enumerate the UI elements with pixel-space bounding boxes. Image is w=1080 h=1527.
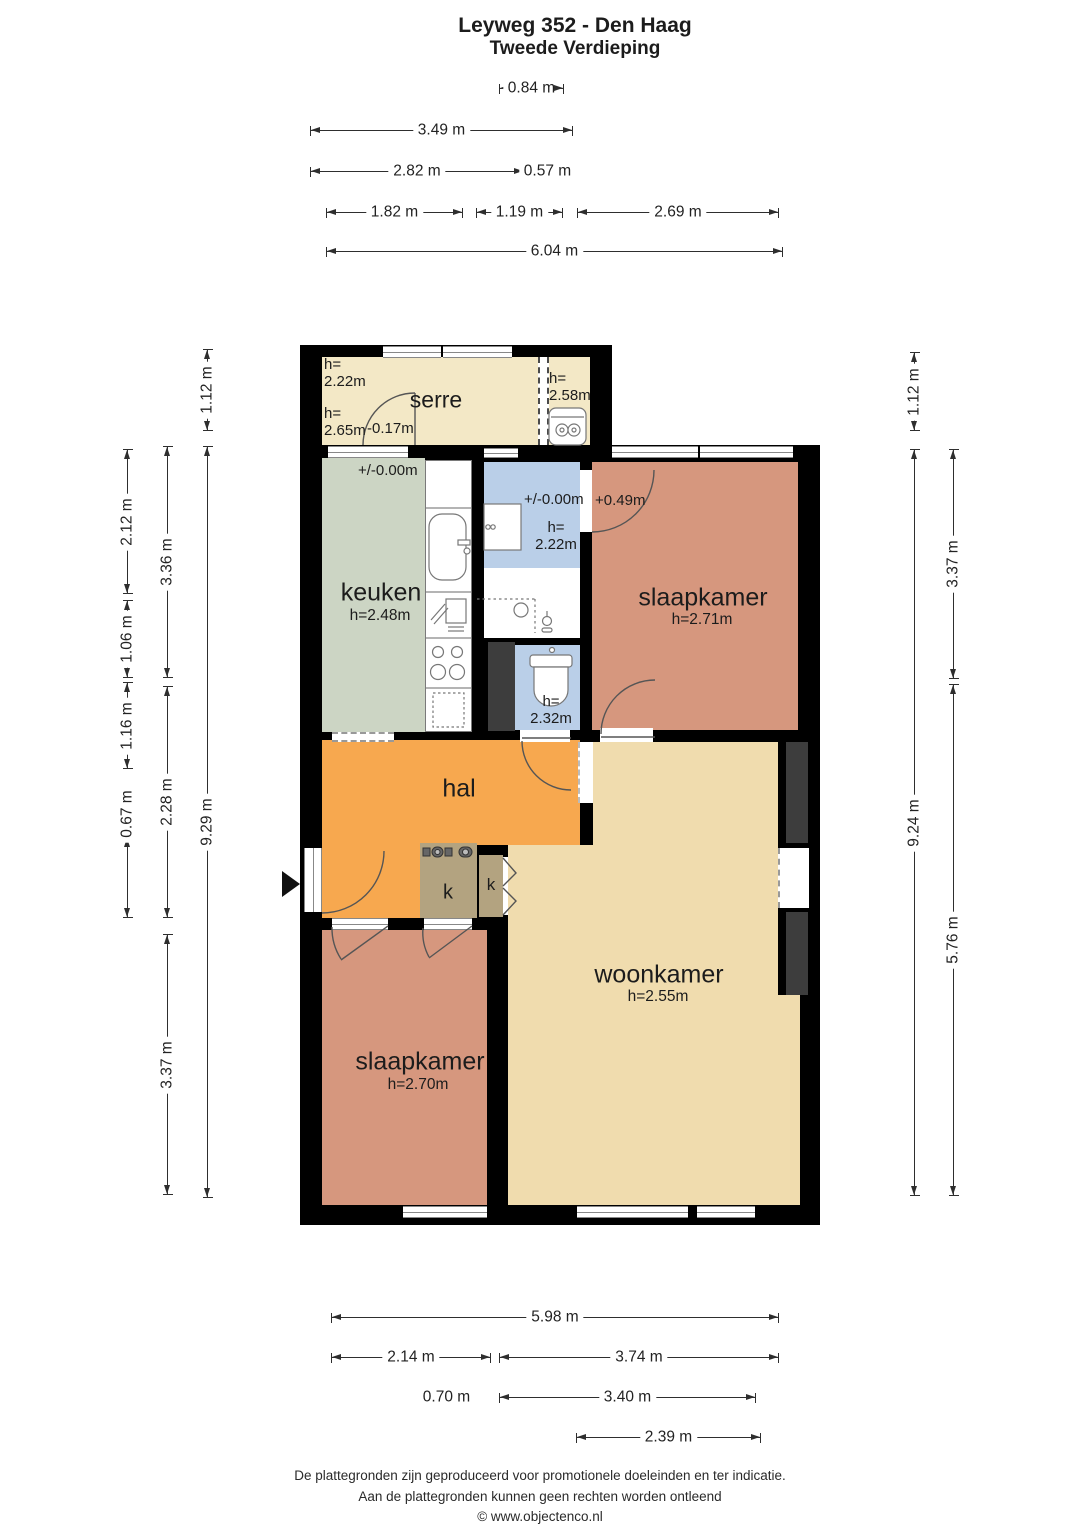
washer-icon xyxy=(484,504,521,550)
slaapkamer-1-door-arc xyxy=(601,680,655,737)
room-label-slaapkamer-2: slaapkamer xyxy=(355,1048,484,1077)
slaapkamer-2-height: h=2.70m xyxy=(388,1076,449,1094)
room-label-keuken: keuken xyxy=(341,579,422,608)
serre-height-top: h= 2.22m xyxy=(324,357,366,391)
dishwasher-icon xyxy=(431,599,466,631)
disclaimer-line-2: Aan de plattegronden kunnen geen rechten… xyxy=(0,1487,1080,1508)
room-label-hal: hal xyxy=(442,775,475,804)
room-label-serre: serre xyxy=(410,387,462,414)
keuken-level: +/-0.00m xyxy=(358,463,418,480)
meter-icons xyxy=(423,847,472,857)
shower-icon xyxy=(477,599,552,633)
room-label-kast-2: k xyxy=(487,875,496,895)
serre-height-bottom: h= 2.65m xyxy=(324,406,366,440)
kast-2-door-leaves xyxy=(503,858,516,915)
entrance-arrow-icon xyxy=(282,871,300,897)
slaapkamer-1-level: +0.49m xyxy=(595,493,645,510)
copyright: © www.objectenco.nl xyxy=(0,1507,1080,1527)
toilet-door-arc xyxy=(522,738,571,790)
floorplan-page: Leyweg 352 - Den Haag Tweede Verdieping … xyxy=(0,0,1080,1527)
boiler-icon xyxy=(549,408,586,445)
slaapkamer-2-door-arc-2 xyxy=(423,926,472,958)
stove-icon xyxy=(431,647,465,680)
room-label-kast-1: k xyxy=(443,882,453,905)
sink-icon xyxy=(429,514,470,580)
room-label-woonkamer: woonkamer xyxy=(594,961,723,990)
plan-symbols xyxy=(0,0,1080,1527)
woonkamer-height: h=2.55m xyxy=(628,988,689,1006)
badkamer-height: h= 2.22m xyxy=(535,520,577,554)
disclaimer: De plattegronden zijn geproduceerd voor … xyxy=(0,1466,1080,1527)
keuken-height: h=2.48m xyxy=(350,607,411,625)
entrance-door-arc xyxy=(322,851,384,913)
serre-level: -0.17m xyxy=(367,421,414,438)
toilet-height: h= 2.32m xyxy=(530,694,572,728)
room-label-slaapkamer-1: slaapkamer xyxy=(638,584,767,613)
disclaimer-line-1: De plattegronden zijn geproduceerd voor … xyxy=(0,1466,1080,1487)
counter-dashed-area xyxy=(433,693,464,727)
slaapkamer-1-height: h=2.71m xyxy=(672,611,733,629)
boiler-height: h= 2.58m xyxy=(549,371,591,405)
badkamer-level: +/-0.00m xyxy=(524,492,584,509)
slaapkamer-2-door-arc-1 xyxy=(332,926,388,960)
